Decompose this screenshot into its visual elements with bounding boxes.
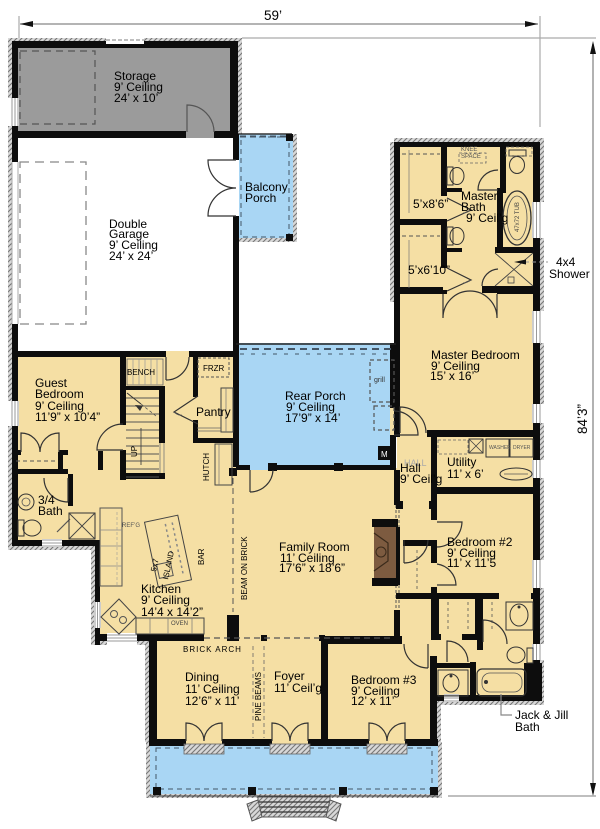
- svg-text:11’ Ceil’g: 11’ Ceil’g: [274, 681, 322, 695]
- svg-text:12’ x 11’: 12’ x 11’: [351, 694, 394, 708]
- svg-text:59’: 59’: [264, 8, 282, 23]
- svg-text:5’x8’6”: 5’x8’6”: [413, 197, 448, 211]
- svg-text:47x72 TUB: 47x72 TUB: [515, 202, 521, 232]
- svg-text:BEAM ON BRICK: BEAM ON BRICK: [240, 536, 249, 600]
- svg-text:grill: grill: [374, 377, 385, 384]
- svg-text:BRICK ARCH: BRICK ARCH: [183, 645, 242, 654]
- svg-text:KNEE: KNEE: [461, 147, 477, 153]
- svg-text:SPACE: SPACE: [461, 154, 481, 160]
- svg-text:UP: UP: [130, 446, 139, 457]
- svg-text:BAR: BAR: [197, 548, 206, 565]
- svg-text:OVEN: OVEN: [171, 621, 188, 627]
- svg-text:FRZR: FRZR: [203, 364, 225, 373]
- svg-text:24’ x 10’: 24’ x 10’: [114, 91, 158, 105]
- svg-text:11’9” x 10’4”: 11’9” x 10’4”: [35, 410, 100, 424]
- svg-text:17’9” x 14’: 17’9” x 14’: [285, 411, 340, 425]
- svg-text:DRYER: DRYER: [513, 445, 531, 451]
- svg-text:9’ Ceil’g: 9’ Ceil’g: [400, 472, 442, 486]
- svg-text:Shower: Shower: [549, 267, 590, 281]
- svg-text:17’6” x 18’6”: 17’6” x 18’6”: [279, 561, 345, 575]
- svg-text:9’ Ceil’g: 9’ Ceil’g: [466, 211, 508, 225]
- svg-text:14’4 x 14’2”: 14’4 x 14’2”: [141, 605, 203, 619]
- svg-text:11’ x 11’5: 11’ x 11’5: [447, 556, 496, 570]
- svg-text:5’x6’10”: 5’x6’10”: [408, 263, 450, 277]
- svg-text:12’6” x 11’: 12’6” x 11’: [185, 694, 239, 708]
- svg-text:M: M: [381, 450, 388, 459]
- svg-text:Porch: Porch: [245, 191, 276, 205]
- svg-text:84’3”: 84’3”: [575, 404, 590, 434]
- svg-text:HUTCH: HUTCH: [202, 453, 211, 481]
- svg-text:PINE BEAMS: PINE BEAMS: [254, 672, 263, 721]
- svg-text:BENCH: BENCH: [127, 368, 155, 377]
- svg-text:Pantry: Pantry: [196, 405, 231, 419]
- svg-text:15’ x 16’: 15’ x 16’: [430, 369, 474, 383]
- svg-text:REF’G: REF’G: [122, 523, 140, 529]
- svg-text:WASHER: WASHER: [489, 445, 511, 451]
- svg-text:Bath: Bath: [515, 720, 540, 734]
- svg-text:11’ x 6’: 11’ x 6’: [447, 467, 484, 481]
- svg-text:Bath: Bath: [38, 504, 63, 518]
- svg-text:24’ x 24’: 24’ x 24’: [109, 249, 153, 263]
